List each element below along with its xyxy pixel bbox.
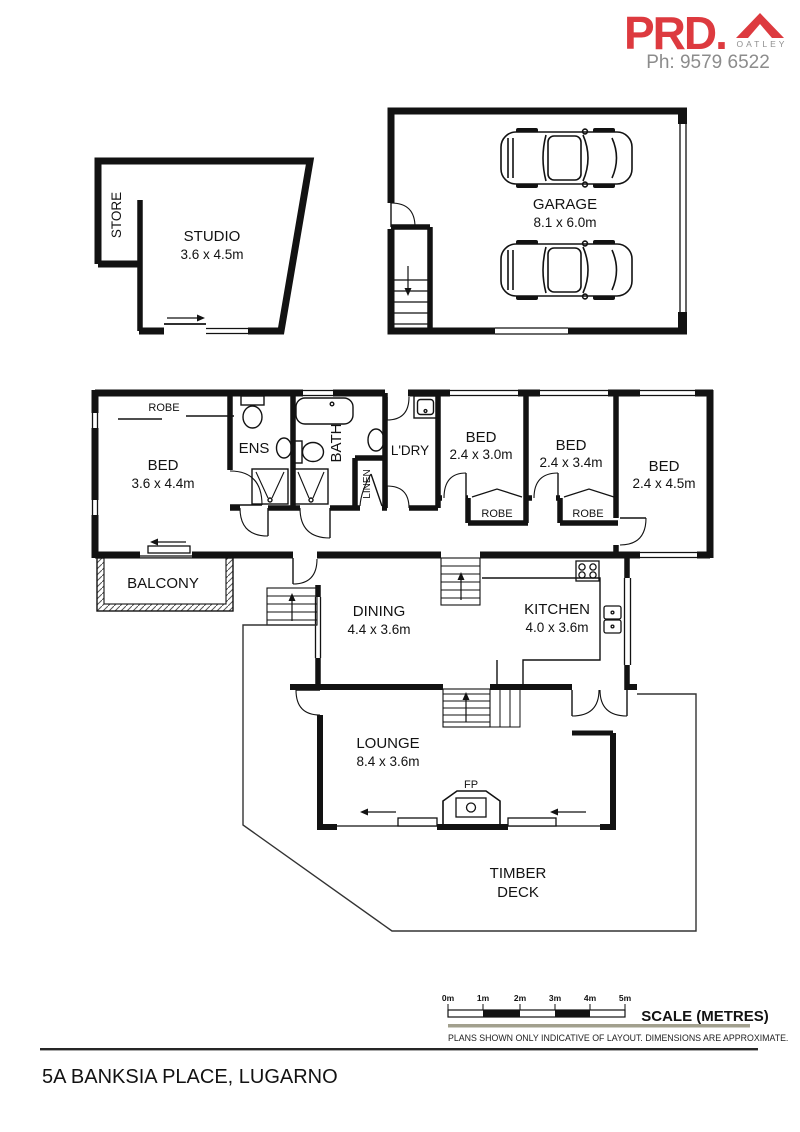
scale-tick-label: 0m <box>442 993 455 1003</box>
slider-leaf <box>398 818 437 826</box>
car-icon <box>501 240 632 300</box>
dims-bed2: 2.4 x 3.0m <box>449 447 512 462</box>
brand-logo: PRD. OATLEY Ph: 9579 6522 <box>624 7 787 73</box>
arrow-up-icon <box>458 572 465 580</box>
studio-block: STORE STUDIO 3.6 x 4.5m <box>98 161 310 334</box>
garage-door-jamb-bottom <box>678 312 687 331</box>
scale-tick-label: 5m <box>619 993 632 1003</box>
toilet-icon <box>303 443 324 462</box>
label-bed3: BED <box>556 437 587 454</box>
arrow-down-icon <box>405 288 412 296</box>
label-fireplace: FP <box>464 779 478 791</box>
footer: 5A BANKSIA PLACE, LUGARNO <box>40 1048 758 1088</box>
dims-studio: 3.6 x 4.5m <box>180 247 243 262</box>
label-store: STORE <box>109 192 124 238</box>
garage-window <box>495 328 568 334</box>
garage-stair-walls <box>391 227 430 331</box>
arrow-up-icon <box>463 692 470 700</box>
bedroom-level: ROBE BED 3.6 x 4.4m ENS BATH LINEN L'DRY… <box>93 390 714 584</box>
dims-dining: 4.4 x 3.6m <box>347 622 410 637</box>
label-kitchen: KITCHEN <box>524 601 590 618</box>
scale-rule-line <box>448 1024 750 1028</box>
laundry-sink-icon <box>414 396 437 418</box>
double-door-arcs <box>572 690 627 716</box>
label-bed2: BED <box>466 429 497 446</box>
door-arc <box>296 690 320 715</box>
robe-rail-icon <box>472 489 614 497</box>
label-linen: LINEN <box>362 469 373 498</box>
scale-ticks <box>448 1004 625 1010</box>
label-robe3: ROBE <box>572 508 603 520</box>
double-door-leaves <box>572 690 627 716</box>
label-balcony: BALCONY <box>127 575 199 592</box>
dims-bed-main: 3.6 x 4.4m <box>131 476 194 491</box>
scale-ruler <box>448 1010 625 1017</box>
dims-bed4: 2.4 x 4.5m <box>632 476 695 491</box>
arrow-left-icon <box>150 539 158 546</box>
slider-leaf <box>508 818 556 826</box>
robe-main-doors <box>118 416 234 419</box>
disclaimer-text: PLANS SHOWN ONLY INDICATIVE OF LAYOUT. D… <box>448 1033 788 1043</box>
label-bed4: BED <box>649 458 680 475</box>
balcony-block: BALCONY <box>97 558 233 611</box>
bathtub-icon <box>296 398 353 424</box>
arrow-left-icon <box>360 809 368 816</box>
toilet-icon <box>241 396 264 405</box>
label-studio: STUDIO <box>184 228 241 245</box>
label-ens: ENS <box>239 440 270 457</box>
label-deck-1: TIMBER <box>490 865 547 882</box>
basin-icon <box>277 438 292 458</box>
garage-door-arc <box>391 203 415 227</box>
scale-tick-label: 4m <box>584 993 597 1003</box>
scale-title: SCALE (METRES) <box>641 1008 769 1025</box>
scale-tick-label: 1m <box>477 993 490 1003</box>
label-robe2: ROBE <box>481 508 512 520</box>
label-laundry: L'DRY <box>391 443 429 458</box>
kitchen-sink-icon <box>604 606 621 633</box>
dims-kitchen: 4.0 x 3.6m <box>525 620 588 635</box>
studio-walls <box>98 161 310 331</box>
toilet-icon <box>243 406 262 428</box>
footer-divider <box>40 1048 758 1050</box>
scale-tick-label: 3m <box>549 993 562 1003</box>
brand-sub-label: OATLEY <box>737 39 788 49</box>
scale-tick-label: 2m <box>514 993 527 1003</box>
label-bed-main: BED <box>148 457 179 474</box>
balcony-slider-leaf <box>148 546 190 553</box>
label-dining: DINING <box>353 603 406 620</box>
arrow-up-icon <box>289 593 296 601</box>
label-deck-2: DECK <box>497 884 539 901</box>
scale-bar: 0m 1m 2m 3m 4m 5m SCALE (METRES) PLANS S… <box>442 993 789 1043</box>
dims-bed3: 2.4 x 3.4m <box>539 455 602 470</box>
dims-lounge: 8.4 x 3.6m <box>356 754 419 769</box>
label-bath: BATH <box>328 424 345 463</box>
car-icon <box>501 128 632 188</box>
label-lounge: LOUNGE <box>356 735 419 752</box>
address-title: 5A BANKSIA PLACE, LUGARNO <box>42 1066 338 1088</box>
floorplan-page: PRD. OATLEY Ph: 9579 6522 STORE STUDIO 3… <box>0 0 800 1132</box>
roof-icon <box>736 13 784 38</box>
dining-kitchen-block: DINING 4.4 x 3.6m KITCHEN 4.0 x 3.6m <box>267 557 631 690</box>
arrow-left-icon <box>550 809 558 816</box>
phone-number: Ph: 9579 6522 <box>646 52 770 73</box>
garage-block: GARAGE 8.1 x 6.0m <box>391 111 687 334</box>
basin-icon <box>368 429 384 451</box>
floorplan-svg: PRD. OATLEY Ph: 9579 6522 STORE STUDIO 3… <box>0 0 800 1132</box>
dims-garage: 8.1 x 6.0m <box>533 215 596 230</box>
upper-windows <box>93 391 698 558</box>
garage-door-jamb-top <box>678 111 687 124</box>
garage-stairs-icon <box>392 280 428 324</box>
garage-roller-door <box>680 124 686 312</box>
fireplace-icon <box>443 791 500 826</box>
studio-window <box>206 329 248 334</box>
label-garage: GARAGE <box>533 196 597 213</box>
arrow-right-icon <box>197 315 205 322</box>
lounge-block: FP LOUNGE 8.4 x 3.6m <box>290 687 637 830</box>
label-robe-main: ROBE <box>148 402 179 414</box>
